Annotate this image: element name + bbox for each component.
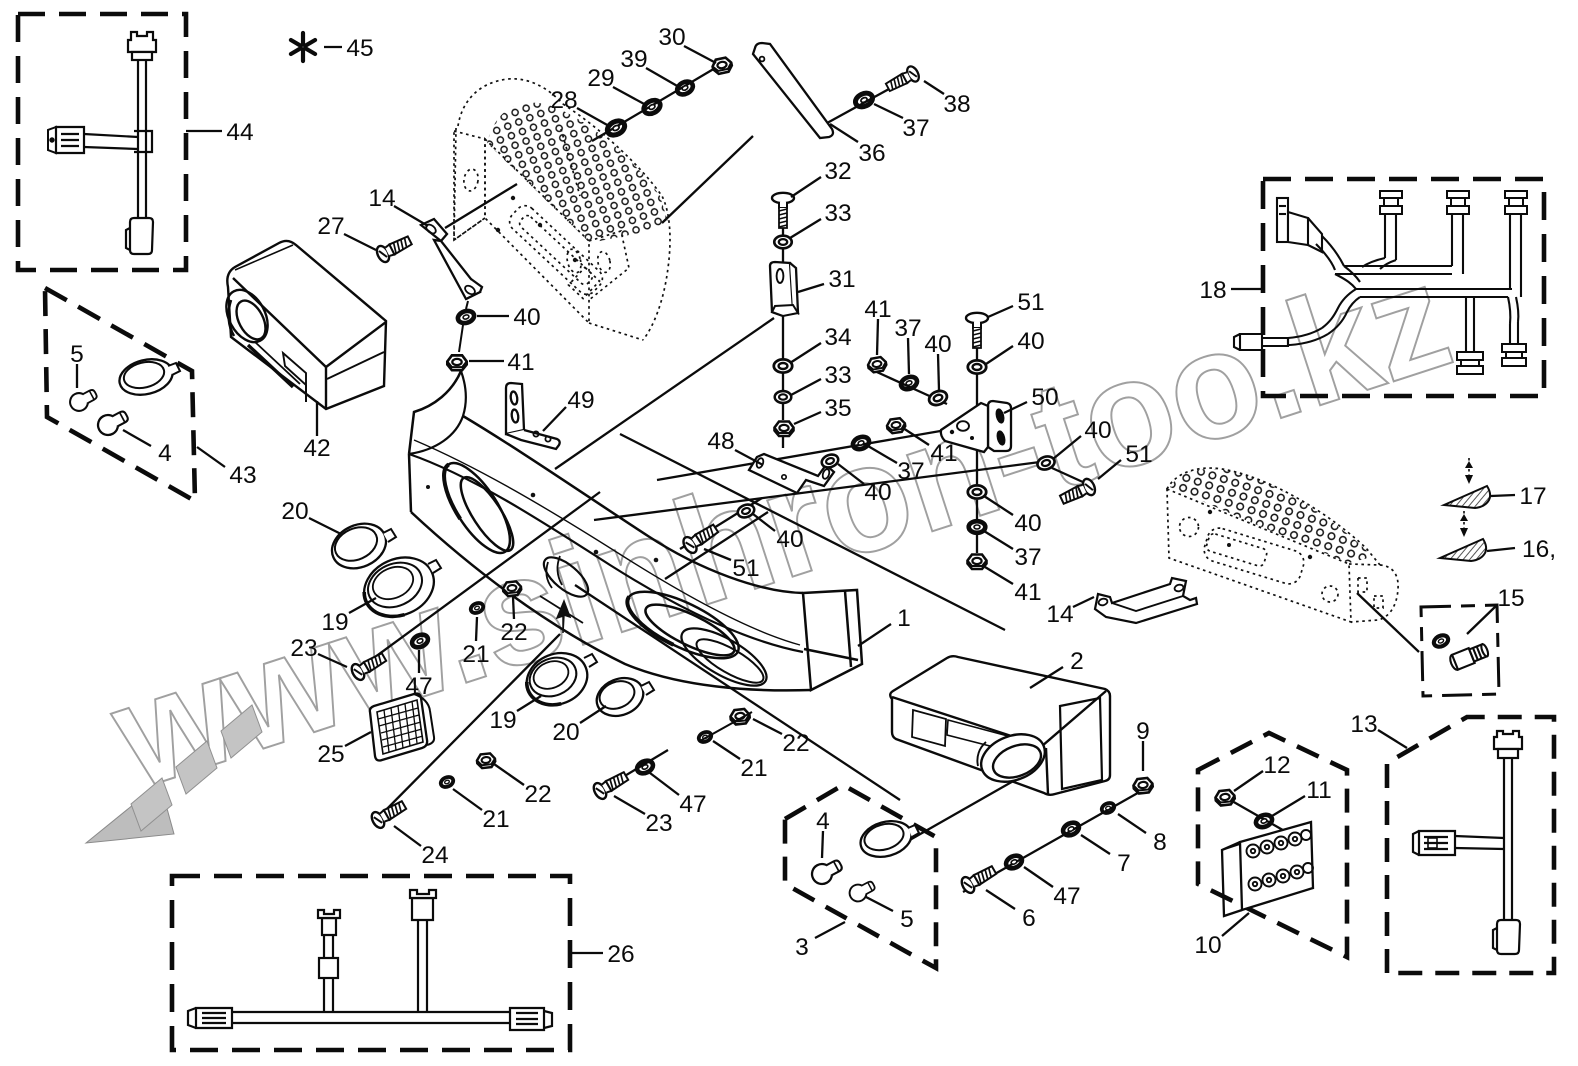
svg-text:33: 33: [824, 362, 851, 389]
svg-text:37: 37: [894, 315, 921, 342]
svg-text:5: 5: [900, 906, 914, 933]
svg-text:51: 51: [1017, 289, 1044, 316]
svg-text:51: 51: [732, 555, 759, 582]
svg-text:45: 45: [346, 35, 373, 62]
svg-text:40: 40: [513, 304, 540, 331]
svg-text:42: 42: [303, 435, 330, 462]
svg-text:47: 47: [405, 673, 432, 700]
svg-text:25: 25: [317, 741, 344, 768]
svg-text:22: 22: [524, 781, 551, 808]
svg-text:10: 10: [1194, 932, 1221, 959]
svg-text:15: 15: [1497, 585, 1524, 612]
svg-text:40: 40: [1084, 417, 1111, 444]
svg-text:21: 21: [482, 806, 509, 833]
svg-text:4: 4: [816, 808, 830, 835]
svg-text:14: 14: [1046, 601, 1073, 628]
svg-text:40: 40: [1017, 328, 1044, 355]
svg-text:28: 28: [550, 87, 577, 114]
svg-text:39: 39: [620, 46, 647, 73]
svg-text:6: 6: [1022, 905, 1036, 932]
svg-text:51: 51: [1125, 441, 1152, 468]
svg-text:22: 22: [782, 730, 809, 757]
svg-text:9: 9: [1136, 718, 1150, 745]
svg-text:41: 41: [864, 296, 891, 323]
svg-text:30: 30: [658, 24, 685, 51]
svg-text:34: 34: [824, 324, 851, 351]
svg-text:16,: 16,: [1522, 536, 1556, 563]
svg-text:47: 47: [679, 791, 706, 818]
svg-text:27: 27: [317, 213, 344, 240]
svg-text:41: 41: [507, 349, 534, 376]
svg-text:3: 3: [795, 934, 809, 961]
svg-text:20: 20: [552, 719, 579, 746]
svg-text:49: 49: [567, 387, 594, 414]
svg-text:1: 1: [897, 605, 911, 632]
svg-text:24: 24: [421, 842, 448, 869]
svg-text:40: 40: [1014, 510, 1041, 537]
svg-text:12: 12: [1263, 752, 1290, 779]
svg-text:13: 13: [1350, 711, 1377, 738]
svg-text:40: 40: [864, 479, 891, 506]
svg-text:50: 50: [1031, 384, 1058, 411]
svg-text:18: 18: [1199, 277, 1226, 304]
svg-text:31: 31: [828, 266, 855, 293]
svg-text:43: 43: [229, 462, 256, 489]
svg-text:41: 41: [1014, 579, 1041, 606]
svg-text:26: 26: [607, 941, 634, 968]
svg-text:5: 5: [70, 341, 84, 368]
svg-text:21: 21: [462, 641, 489, 668]
svg-text:19: 19: [321, 609, 348, 636]
svg-text:8: 8: [1153, 829, 1167, 856]
svg-text:37: 37: [1014, 544, 1041, 571]
svg-text:23: 23: [290, 635, 317, 662]
svg-text:40: 40: [776, 526, 803, 553]
svg-text:4: 4: [158, 440, 172, 467]
svg-text:33: 33: [824, 200, 851, 227]
svg-text:38: 38: [943, 91, 970, 118]
svg-text:36: 36: [858, 140, 885, 167]
svg-text:40: 40: [924, 331, 951, 358]
svg-text:37: 37: [902, 115, 929, 142]
svg-text:7: 7: [1117, 850, 1131, 877]
svg-text:19: 19: [489, 707, 516, 734]
svg-text:47: 47: [1053, 883, 1080, 910]
svg-text:20: 20: [281, 498, 308, 525]
svg-text:32: 32: [824, 158, 851, 185]
svg-text:17: 17: [1519, 483, 1546, 510]
svg-text:11: 11: [1306, 777, 1331, 804]
svg-text:23: 23: [645, 810, 672, 837]
svg-text:35: 35: [824, 395, 851, 422]
svg-text:22: 22: [500, 619, 527, 646]
svg-text:21: 21: [740, 755, 767, 782]
svg-text:37: 37: [897, 458, 924, 485]
svg-text:14: 14: [368, 185, 395, 212]
svg-text:2: 2: [1070, 648, 1084, 675]
svg-text:48: 48: [707, 428, 734, 455]
svg-text:41: 41: [930, 440, 957, 467]
svg-text:29: 29: [587, 65, 614, 92]
svg-text:44: 44: [226, 119, 253, 146]
